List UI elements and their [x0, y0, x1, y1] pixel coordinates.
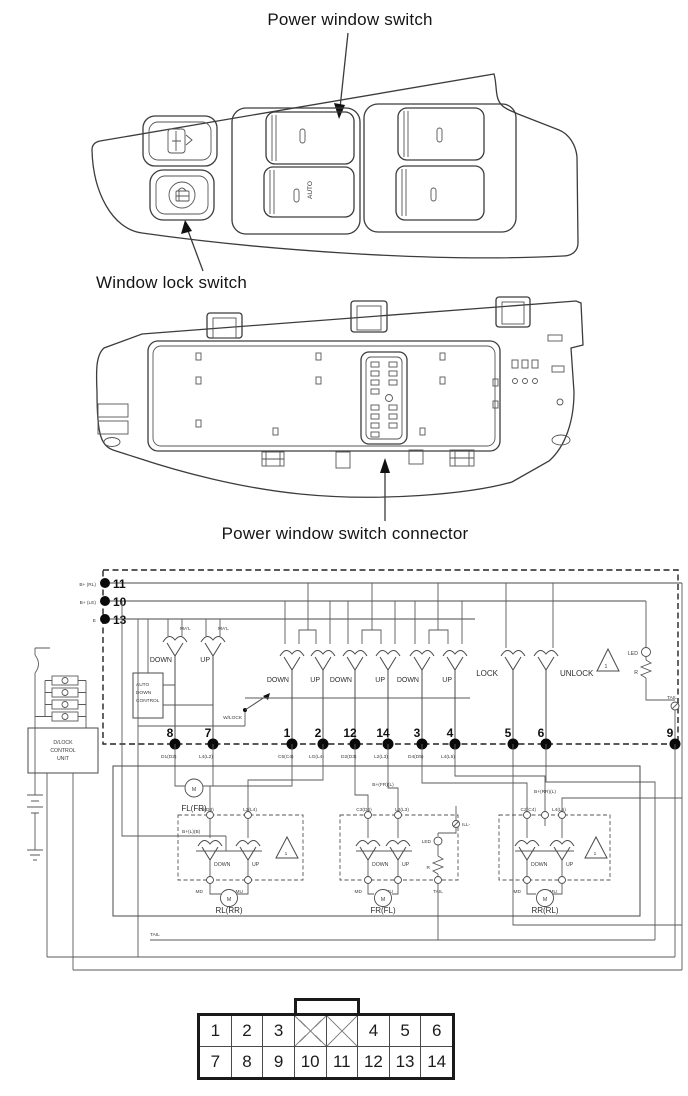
svg-text:DOWN: DOWN: [330, 677, 352, 684]
pin-cell-12: 12: [357, 1047, 389, 1077]
clip-holes: [196, 353, 498, 435]
pin-5: 5: [505, 726, 519, 750]
arrow-to-window-lock-switch: [181, 220, 203, 271]
svg-text:1: 1: [605, 664, 608, 670]
svg-text:D1(D2): D1(D2): [161, 754, 177, 760]
pin-cell-6: 6: [420, 1016, 452, 1047]
svg-text:12: 12: [343, 726, 357, 740]
svg-text:R: R: [634, 670, 638, 676]
svg-text:ILL-: ILL-: [462, 822, 471, 828]
svg-text:1: 1: [284, 726, 291, 740]
svg-text:8: 8: [167, 726, 174, 740]
tail-wire-label: TAIL: [150, 932, 160, 938]
svg-text:1: 1: [594, 851, 597, 857]
svg-text:L4(L5): L4(L5): [441, 754, 455, 760]
pin-cell-9: 9: [262, 1047, 294, 1077]
svg-text:B+(FR)(L): B+(FR)(L): [372, 782, 394, 788]
pin-cell-14: 14: [420, 1047, 452, 1077]
pin-cell-3: 3: [262, 1016, 294, 1047]
blocked-cell: [294, 1016, 326, 1047]
svg-text:R: R: [427, 865, 431, 871]
svg-text:L2(L3): L2(L3): [374, 754, 388, 760]
svg-text:7: 7: [205, 726, 212, 740]
pin-4: 4 L4(L5): [441, 726, 461, 760]
window-lock-icon: [176, 188, 189, 201]
svg-text:M: M: [192, 787, 196, 793]
auto-down-control: AUTO DOWN CONTROL: [133, 619, 213, 718]
pin-cell-5: 5: [389, 1016, 421, 1047]
svg-text:C5(C4): C5(C4): [278, 754, 294, 760]
svg-text:LOCK: LOCK: [476, 669, 498, 678]
pin-cell-8: 8: [231, 1047, 263, 1077]
svg-text:UP: UP: [375, 677, 385, 684]
svg-text:TAIL: TAIL: [667, 695, 677, 701]
door-lock-switches: LOCK UNLOCK: [476, 583, 594, 744]
svg-text:UNLOCK: UNLOCK: [560, 669, 594, 678]
pin-14: 14 L2(L3): [374, 726, 394, 760]
pin-6: 6: [538, 726, 552, 750]
pin-3: 3 D4(D5): [408, 726, 428, 760]
auto-text: AUTO: [307, 181, 314, 199]
pin-cell-11: 11: [326, 1047, 358, 1077]
svg-text:B+(L)(B): B+(L)(B): [182, 829, 201, 835]
svg-text:DOWN: DOWN: [267, 677, 289, 684]
svg-text:UP: UP: [310, 677, 320, 684]
svg-text:DOWN: DOWN: [214, 862, 231, 868]
routing-wires: [47, 583, 682, 970]
switch-unit-dashed-boundary: [103, 570, 678, 744]
mounting-posts: [207, 297, 530, 338]
svg-text:L4(L2): L4(L2): [199, 754, 213, 760]
svg-text:2: 2: [315, 726, 322, 740]
pin-cell-10: 10: [294, 1047, 326, 1077]
svg-text:UP: UP: [566, 862, 574, 868]
svg-text:TAIL: TAIL: [433, 889, 443, 895]
svg-text:UP: UP: [200, 657, 210, 664]
svg-text:1: 1: [285, 851, 288, 857]
right-side-details: [512, 335, 570, 445]
pin-cell-2: 2: [231, 1016, 263, 1047]
bottom-tabs: [262, 450, 474, 468]
svg-text:10: 10: [113, 595, 127, 609]
svg-text:LED: LED: [422, 839, 432, 845]
left-pin-11: 11 B+ (RL): [79, 577, 126, 591]
motor-box-fr: C3(D2) L2(L3) B+(FR)(L) DOWN UP MD MU M …: [340, 744, 471, 915]
svg-text:M: M: [543, 897, 547, 903]
pin-cell-1: 1: [200, 1016, 231, 1047]
svg-text:MD: MD: [355, 889, 363, 895]
svg-text:DOWN: DOWN: [372, 862, 389, 868]
driver-window-switches: MA'L MA'L DOWN UP: [150, 619, 229, 744]
svg-text:3: 3: [414, 726, 421, 740]
battery-and-fuse-block: D/LOCK CONTROL UNIT: [27, 648, 98, 970]
front-window-switch-group: AUTO: [232, 108, 360, 234]
svg-text:MD: MD: [514, 889, 522, 895]
window-lock-switch: [150, 170, 214, 220]
svg-text:M: M: [381, 897, 385, 903]
svg-text:14: 14: [376, 726, 390, 740]
passenger-window-switches: DOWN UP DOWN UP DOWN UP: [245, 583, 470, 744]
svg-text:DOWN: DOWN: [150, 657, 172, 664]
service-manual-page: Power window switch Window lock switch P…: [0, 0, 688, 1096]
svg-text:D4(D5): D4(D5): [408, 754, 424, 760]
svg-text:UP: UP: [402, 862, 410, 868]
svg-text:LG(L4): LG(L4): [309, 754, 324, 760]
motor-box-rl: C3(D3) L3(L4) B+(L)(B) DOWN UP 1 MD MU M…: [178, 744, 323, 915]
svg-text:MA'L: MA'L: [218, 626, 229, 632]
pin-12: 12 D2(D3): [341, 726, 361, 760]
supply-rails: [105, 583, 682, 619]
motor-box-rr: C2(C4) L4(L5) B+(RR)(L) DOWN UP 1 MD MU …: [422, 744, 682, 915]
pinout-row-1: 1 2 3 4 5 6: [200, 1016, 452, 1047]
pin-cell-13: 13: [389, 1047, 421, 1077]
svg-text:9: 9: [667, 726, 674, 740]
svg-text:B+ (LE): B+ (LE): [80, 600, 97, 606]
svg-text:CONTROL: CONTROL: [136, 698, 160, 704]
illumination-circuit: 1 LED R TAIL: [597, 601, 679, 744]
svg-text:CONTROL: CONTROL: [50, 748, 75, 754]
svg-text:W/LOCK: W/LOCK: [223, 715, 243, 721]
wiring-schematic: 11 B+ (RL) 10 B+ (LE) 13 E MA'L MA'L DOW…: [0, 555, 688, 985]
svg-text:D2(D3): D2(D3): [341, 754, 357, 760]
arrow-to-connector: [380, 458, 390, 521]
blocked-cell: [326, 1016, 358, 1047]
d-lock-control-unit: D/LOCK CONTROL UNIT: [28, 728, 98, 970]
svg-text:DOWN: DOWN: [397, 677, 419, 684]
pin-1: 1 C5(C4): [278, 726, 298, 760]
svg-text:11: 11: [113, 577, 126, 591]
front-view-drawing: AUTO: [0, 0, 688, 300]
svg-text:LED: LED: [628, 651, 638, 657]
svg-text:RL(RR): RL(RR): [215, 906, 242, 915]
fuses: [35, 676, 86, 728]
left-pin-10: 10 B+ (LE): [80, 595, 127, 609]
back-view-drawing: [0, 295, 688, 560]
pin-7: 7 L4(L2): [199, 726, 219, 760]
svg-text:UNIT: UNIT: [57, 756, 70, 762]
svg-text:6: 6: [538, 726, 545, 740]
pin-2: 2 LG(L4): [309, 726, 329, 760]
svg-text:D/LOCK: D/LOCK: [53, 740, 73, 746]
pinout-row-2: 7 8 9 10 11 12 13 14: [200, 1047, 452, 1077]
svg-text:5: 5: [505, 726, 512, 740]
connector-pinout-table: 1 2 3 4 5 6 7 8 9 10 11 12 13 14: [197, 1013, 455, 1080]
svg-text:RR(RL): RR(RL): [531, 906, 558, 915]
pin-cell-7: 7: [200, 1047, 231, 1077]
pin-8: 8 D1(D2): [161, 726, 181, 760]
svg-text:UP: UP: [442, 677, 452, 684]
pin-cell-4: 4: [357, 1016, 389, 1047]
connector-pin-row: 8 D1(D2) 7 L4(L2) 1 C5(C4) 2 LG(L4) 12 D…: [161, 726, 681, 760]
svg-text:4: 4: [447, 726, 454, 740]
svg-text:M: M: [227, 897, 231, 903]
svg-text:MA'L: MA'L: [180, 626, 191, 632]
svg-text:B+(RR)(L): B+(RR)(L): [534, 789, 556, 795]
svg-text:MD: MD: [196, 889, 204, 895]
svg-text:FR(FL): FR(FL): [370, 906, 396, 915]
svg-text:UP: UP: [252, 862, 260, 868]
svg-text:E: E: [93, 618, 96, 624]
svg-text:DOWN: DOWN: [531, 862, 548, 868]
arrow-to-power-window-switch: [334, 33, 348, 119]
svg-text:13: 13: [113, 613, 127, 627]
power-window-switch-connector: [361, 352, 407, 444]
rear-window-switch-group: [364, 104, 516, 232]
svg-text:B+ (RL): B+ (RL): [79, 582, 96, 588]
